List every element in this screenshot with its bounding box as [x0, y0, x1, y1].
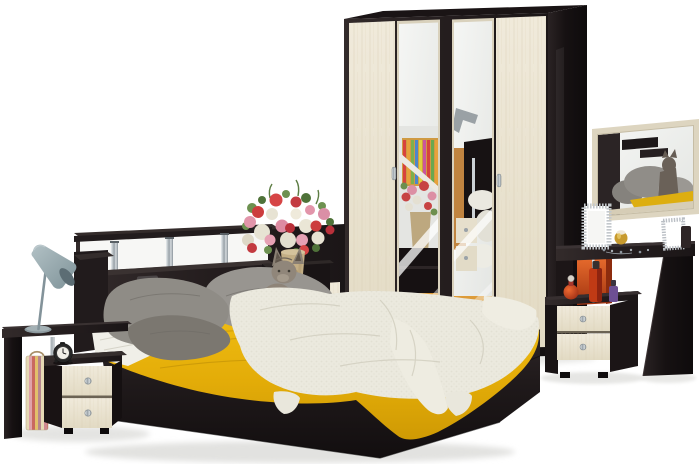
- wardrobe-knob: [392, 167, 396, 180]
- foot: [560, 372, 570, 378]
- drawer-knob: [85, 378, 91, 384]
- lamp-stem: [39, 268, 47, 329]
- chrome-post: [221, 234, 228, 266]
- cat-eye: [278, 270, 281, 273]
- drawer-knob: [85, 410, 91, 416]
- perfume-bottle-round: [564, 285, 579, 300]
- cat-eye: [288, 270, 291, 273]
- bottle-stopper: [568, 275, 574, 281]
- bottle-cap: [611, 280, 616, 286]
- foot: [64, 428, 73, 434]
- alarm-clock: [53, 342, 73, 365]
- drawer-knob: [580, 344, 586, 350]
- right-nightstand-left-side: [545, 296, 558, 374]
- foot: [100, 428, 109, 434]
- right-nightstand-right-side: [610, 298, 638, 372]
- drawer-gap: [62, 396, 112, 399]
- wardrobe-knob: [497, 174, 501, 187]
- right-nightstand-shadow: [541, 372, 645, 384]
- bottle-cap: [593, 261, 600, 269]
- bottle-shade: [597, 268, 602, 302]
- left-nightstand-left-side: [44, 363, 62, 428]
- table-lamp: [25, 245, 78, 334]
- left-nightstand-right-side: [112, 360, 122, 426]
- dark-bottle: [681, 226, 691, 248]
- drawer-knob: [580, 316, 586, 322]
- table-right-support: [643, 252, 693, 376]
- bedroom-scene: [0, 0, 700, 464]
- console-left-panel: [4, 330, 22, 439]
- foot: [598, 372, 608, 378]
- drawer-gap: [557, 331, 610, 333]
- picture-frame-large: [584, 206, 609, 247]
- gold-jar: [615, 230, 628, 244]
- perfume-bottle-small: [609, 286, 618, 302]
- product-photo: [0, 0, 700, 464]
